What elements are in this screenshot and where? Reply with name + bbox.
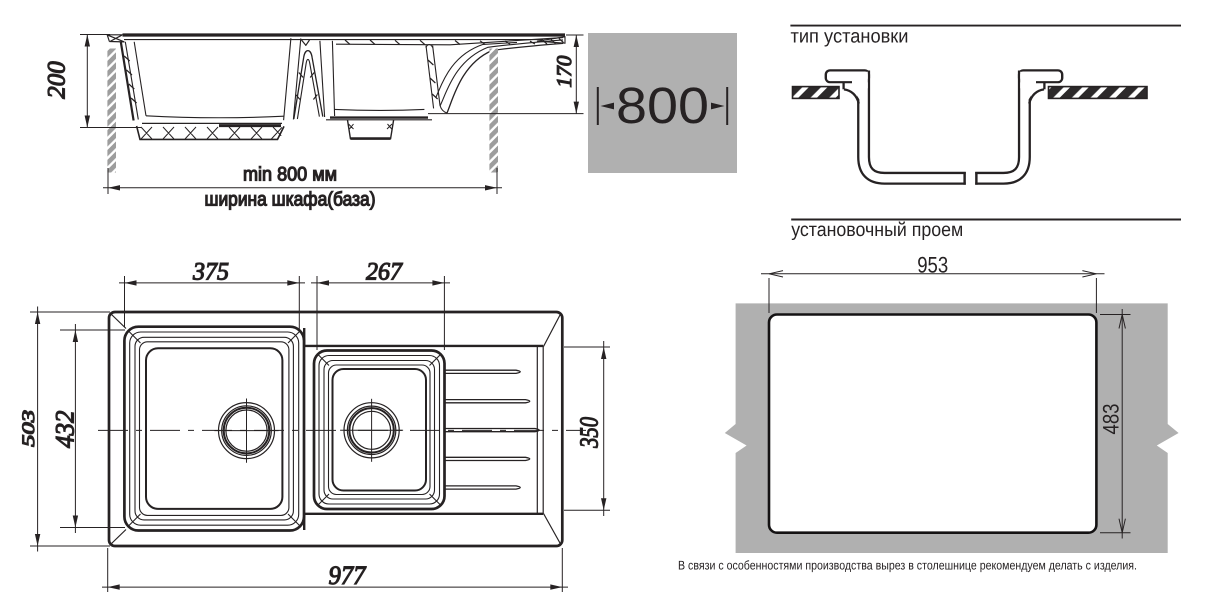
- svg-text:350: 350: [575, 417, 604, 449]
- svg-text:503: 503: [18, 410, 38, 447]
- svg-text:483: 483: [1099, 404, 1124, 435]
- svg-text:тип установки: тип установки: [791, 26, 909, 48]
- svg-text:432: 432: [50, 410, 80, 448]
- svg-text:ширина шкафа(база): ширина шкафа(база): [205, 189, 376, 211]
- svg-text:977: 977: [329, 560, 368, 590]
- svg-text:200: 200: [44, 61, 71, 99]
- svg-text:267: 267: [366, 258, 403, 285]
- svg-text:953: 953: [917, 252, 948, 277]
- svg-text:375: 375: [192, 258, 229, 285]
- svg-text:170: 170: [552, 55, 576, 88]
- svg-text:min 800 мм: min 800 мм: [243, 164, 337, 186]
- svg-text:800: 800: [616, 77, 709, 134]
- svg-text:В связи с особенностями произв: В связи с особенностями производства выр…: [678, 559, 1137, 573]
- svg-text:установочный проем: установочный проем: [791, 219, 963, 241]
